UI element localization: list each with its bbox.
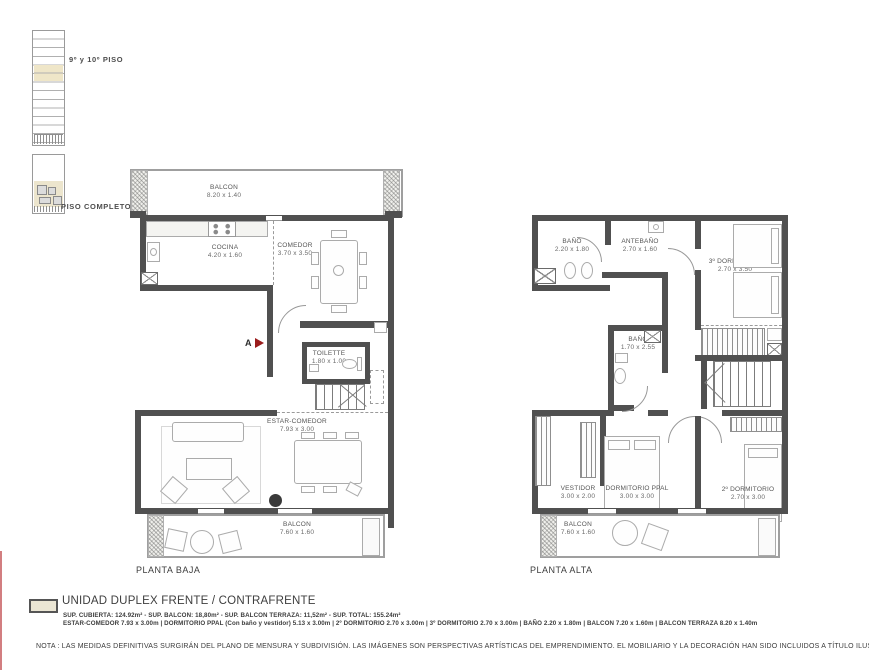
building-elevation-icon — [32, 30, 65, 146]
room-label-estar: ESTAR-COMEDOR 7.93 x 3.00 — [267, 418, 327, 434]
wall-segment — [602, 272, 668, 278]
stove — [208, 221, 236, 237]
legend-room-sizes: ESTAR-COMEDOR 7.93 x 3.00m | DORMITORIO … — [63, 620, 757, 627]
floorplan-sheet: 9º y 10º PISO PISO COMPLETO BALCON 8.20 … — [0, 0, 869, 670]
shower — [644, 330, 661, 343]
chair — [359, 252, 367, 265]
pillow — [748, 448, 778, 458]
round-table — [190, 530, 214, 554]
coffee-table — [186, 458, 232, 480]
wall-segment — [662, 325, 668, 373]
room-dims: 8.20 x 1.40 — [207, 192, 241, 200]
room-dims: 7.60 x 1.60 — [280, 529, 314, 537]
room-name: VESTIDOR — [561, 485, 596, 493]
room-label-balcon-alta: BALCON 7.60 x 1.60 — [561, 521, 595, 537]
room-name: BALCON — [207, 184, 241, 192]
wall-segment — [302, 342, 307, 384]
toilet — [342, 359, 357, 369]
room-dims: 2.70 x 1.60 — [621, 246, 658, 254]
chair — [345, 432, 359, 439]
room-name: ANTEBAÑO — [621, 238, 658, 246]
chair — [301, 486, 315, 493]
section-marker-label: A — [245, 338, 252, 348]
wall-segment — [605, 215, 611, 245]
room-dims: 1.70 x 2.55 — [621, 344, 655, 352]
washbasin — [309, 364, 319, 372]
room-label-antebano: ANTEBAÑO 2.70 x 1.60 — [621, 238, 658, 254]
room-name: COCINA — [208, 244, 242, 252]
balcony-box — [362, 518, 380, 556]
room-name: ESTAR-COMEDOR — [267, 418, 327, 426]
planter — [131, 170, 148, 215]
room-label-balcon-top: BALCON 8.20 x 1.40 — [207, 184, 241, 200]
room-dims: 2.20 x 1.80 — [555, 246, 589, 254]
plan-title-baja: PLANTA BAJA — [136, 565, 200, 575]
window-box — [374, 322, 387, 333]
room-label-vestidor: VESTIDOR 3.00 x 2.00 — [561, 485, 596, 501]
balcony-outline — [130, 169, 403, 217]
full-floor-key-label: PISO COMPLETO — [61, 202, 131, 211]
table-centerpiece — [333, 265, 344, 276]
room-label-comedor: COMEDOR 3.70 x 3.50 — [277, 242, 312, 258]
planta-baja-plan: BALCON 8.20 x 1.40 COCINA 4.20 x 1.60 CO… — [128, 166, 410, 562]
room-name: DORMITORIO PPAL — [605, 485, 668, 493]
column — [269, 494, 282, 507]
closet-box — [767, 328, 782, 341]
wall-segment — [782, 215, 788, 514]
chair — [323, 486, 337, 493]
sink-basin — [653, 224, 659, 230]
sofa — [172, 422, 244, 442]
room-dims: 4.20 x 1.60 — [208, 252, 242, 260]
appliance — [141, 272, 158, 285]
chair — [331, 305, 347, 313]
chair — [359, 276, 367, 289]
room-name: BALCON — [280, 521, 314, 529]
lounge-chair — [164, 528, 188, 552]
window — [266, 216, 282, 221]
room-label-balcon-bottom: BALCON 7.60 x 1.60 — [280, 521, 314, 537]
room-name: 2º DORMITORIO — [722, 486, 775, 494]
round-table — [612, 520, 638, 546]
balcony-box — [758, 518, 776, 556]
kitchen-dining-divider — [273, 221, 274, 285]
plan-title-alta: PLANTA ALTA — [530, 565, 593, 575]
legend-title: UNIDAD DUPLEX FRENTE / CONTRAFRENTE — [62, 595, 316, 607]
closet-boundary — [701, 325, 782, 326]
room-label-cocina: COCINA 4.20 x 1.60 — [208, 244, 242, 260]
highlighted-floors — [34, 65, 63, 81]
mini-room — [37, 185, 47, 195]
wall-segment — [135, 410, 141, 514]
pillow — [771, 276, 779, 314]
planter — [148, 515, 164, 557]
pillow — [608, 440, 630, 450]
wall-segment — [695, 215, 701, 249]
chair — [311, 276, 319, 289]
pillow — [634, 440, 656, 450]
wall-segment — [135, 410, 277, 416]
room-dims: 3.00 x 2.00 — [561, 493, 596, 501]
legend-surfaces: SUP. CUBIERTA: 124.92m² - SUP. BALCON: 1… — [63, 612, 401, 619]
room-label-dorm2: 2º DORMITORIO 2.70 x 3.00 — [722, 486, 775, 502]
chair — [311, 252, 319, 265]
section-marker-arrow — [255, 338, 264, 348]
chair — [301, 432, 315, 439]
planta-alta-plan: BAÑO 2.20 x 1.80 ANTEBAÑO 2.70 x 1.60 3º… — [528, 208, 794, 564]
wall-segment — [648, 410, 668, 416]
ground-floor-hatch — [34, 134, 63, 144]
toilet — [564, 262, 576, 279]
room-dims: 7.60 x 1.60 — [561, 529, 595, 537]
bidet — [581, 262, 593, 279]
closet — [535, 416, 551, 486]
wall-segment — [140, 285, 273, 291]
room-name: BAÑO — [555, 238, 589, 246]
kitchen-counter — [146, 221, 268, 237]
wall-segment — [695, 270, 701, 330]
wall-segment — [267, 285, 273, 377]
void-outline — [370, 370, 384, 404]
room-name: TOILETTE — [312, 350, 346, 358]
planter — [541, 515, 557, 557]
room-dims: 2.70 x 3.00 — [722, 494, 775, 502]
mini-room — [39, 197, 51, 204]
wall-segment — [388, 217, 394, 528]
planter — [383, 170, 400, 215]
wall-segment — [532, 285, 610, 291]
washbasin — [615, 353, 628, 363]
closet — [730, 417, 782, 432]
sink-basin — [150, 248, 157, 256]
toilet — [614, 368, 626, 384]
dining-table — [294, 440, 362, 484]
wall-segment — [722, 410, 782, 416]
room-label-bano1: BAÑO 2.20 x 1.80 — [555, 238, 589, 254]
room-name: COMEDOR — [277, 242, 312, 250]
toilet-tank — [357, 357, 362, 371]
room-name: BALCON — [561, 521, 595, 529]
wall-segment — [302, 342, 370, 347]
disclaimer-note: NOTA : LAS MEDIDAS DEFINITIVAS SURGIRÁN … — [36, 643, 869, 650]
closet — [701, 328, 765, 356]
legend-swatch — [29, 599, 58, 613]
room-dims: 7.93 x 3.00 — [267, 426, 327, 434]
open-boundary — [277, 412, 388, 413]
pillow — [771, 228, 779, 264]
closet — [580, 422, 596, 478]
page-edge-line — [0, 551, 2, 670]
wall-segment — [695, 416, 701, 514]
room-label-dormppal: DORMITORIO PPAL 3.00 x 3.00 — [605, 485, 668, 501]
wall-segment — [608, 325, 614, 411]
wall-segment — [662, 278, 668, 328]
mini-room — [48, 187, 56, 195]
shower — [534, 268, 556, 284]
room-dims: 3.70 x 3.50 — [277, 250, 312, 258]
room-dims: 3.00 x 3.00 — [605, 493, 668, 501]
unit-base-hatch — [34, 206, 63, 212]
chair — [323, 432, 337, 439]
chair — [331, 230, 347, 238]
floors-key-label: 9º y 10º PISO — [69, 55, 123, 64]
